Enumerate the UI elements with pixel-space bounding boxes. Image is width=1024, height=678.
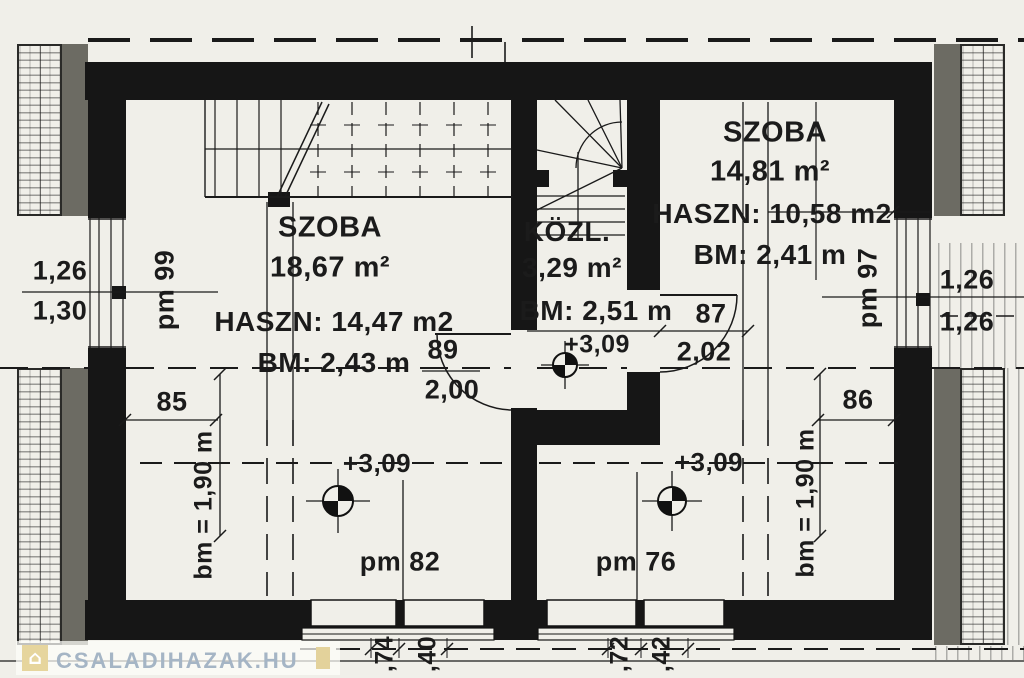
corridor-name: KÖZL.: [524, 218, 611, 246]
room-right-knee: bm = 1,90 m: [794, 428, 819, 577]
dim-window-right-b: ,42: [650, 636, 675, 672]
room-left-haszn: HASZN: 14,47 m2: [214, 308, 453, 336]
room-right-level: +3,09: [675, 449, 743, 475]
dim-window-left-a: ,74: [373, 636, 398, 672]
dim-window-left-b: ,40: [416, 636, 441, 672]
dim-door-right-code: 87: [695, 301, 726, 328]
room-left-level: +3,09: [343, 450, 411, 476]
room-left-pm-wall: pm 99: [152, 250, 179, 331]
watermark-text: CSALADIHAZAK.HU: [56, 648, 299, 674]
dim-window-right-a: ,72: [608, 636, 633, 672]
room-right-area: 14,81 m²: [710, 158, 830, 187]
dim-right-span: 86: [842, 387, 873, 414]
level-marker-right: [642, 471, 702, 531]
room-left-pm: pm 82: [360, 549, 441, 576]
watermark-chip: [316, 647, 330, 669]
room-right-haszn: HASZN: 10,58 m2: [652, 200, 891, 228]
watermark-house-icon: ⌂: [22, 645, 48, 671]
floor-plan: SZOBA 18,67 m² HASZN: 14,47 m2 BM: 2,43 …: [0, 0, 1024, 678]
room-right-name: SZOBA: [723, 119, 827, 148]
dim-left-wall-bottom: 1,30: [33, 298, 88, 325]
corridor-bm: BM: 2,51 m: [520, 297, 673, 325]
corridor-level: +3,09: [564, 333, 630, 358]
dim-door-left-code: 89: [427, 337, 458, 364]
level-marker-left: [306, 469, 370, 533]
dim-left-span: 85: [156, 389, 187, 416]
room-left-area: 18,67 m²: [270, 254, 390, 283]
room-left-knee: bm = 1,90 m: [192, 430, 217, 579]
floorplan-drawing: [0, 0, 1024, 678]
room-right-pm-wall: pm 97: [855, 248, 882, 329]
dim-door-right-width: 2,02: [677, 339, 732, 366]
dim-right-wall-top: 1,26: [940, 267, 995, 294]
corridor-area: 3,29 m²: [522, 254, 622, 282]
roof-outline: [88, 26, 1024, 62]
room-right-pm: pm 76: [596, 549, 677, 576]
stair-straight: [205, 100, 513, 197]
dim-door-left-width: 2,00: [425, 377, 480, 404]
room-left-name: SZOBA: [278, 214, 382, 243]
dim-left-wall-top: 1,26: [33, 258, 88, 285]
room-left-bm: BM: 2,43 m: [258, 349, 411, 377]
room-right-bm: BM: 2,41 m: [694, 241, 847, 269]
dim-right-wall-bottom: 1,26: [940, 309, 995, 336]
